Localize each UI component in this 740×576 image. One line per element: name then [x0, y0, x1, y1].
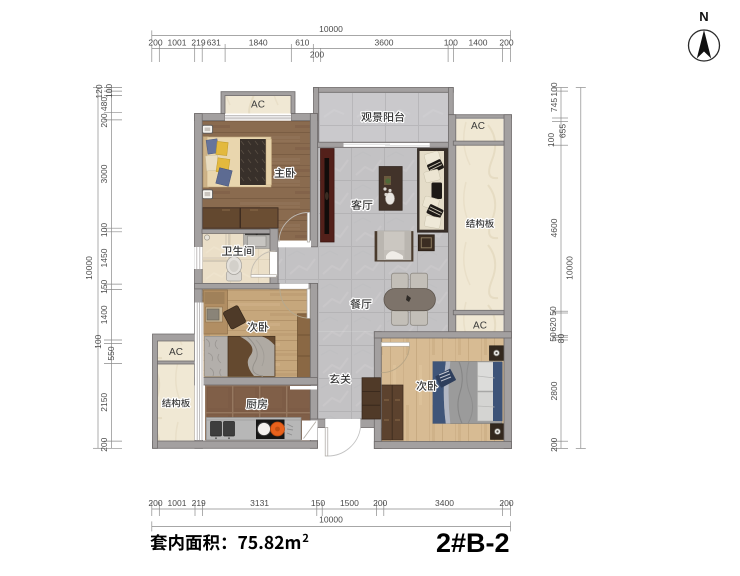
svg-text:AC: AC — [471, 121, 485, 132]
svg-text:100: 100 — [104, 84, 114, 98]
svg-text:10000: 10000 — [565, 256, 575, 280]
svg-text:200: 200 — [549, 437, 559, 451]
svg-text:2150: 2150 — [99, 393, 109, 412]
svg-text:4600: 4600 — [549, 218, 559, 237]
svg-text:480: 480 — [99, 97, 109, 111]
svg-text:550: 550 — [106, 346, 116, 360]
svg-text:1450: 1450 — [99, 248, 109, 267]
svg-text:N: N — [699, 9, 708, 24]
svg-text:219: 219 — [191, 38, 205, 48]
svg-text:100: 100 — [549, 82, 559, 96]
svg-text:219: 219 — [192, 498, 206, 508]
svg-text:100: 100 — [444, 38, 458, 48]
svg-text:655: 655 — [558, 124, 568, 138]
svg-text:1840: 1840 — [249, 38, 268, 48]
svg-text:3131: 3131 — [250, 498, 269, 508]
svg-text:100: 100 — [546, 133, 556, 147]
svg-text:100: 100 — [93, 334, 103, 348]
svg-text:200: 200 — [148, 38, 162, 48]
svg-text:200: 200 — [148, 498, 162, 508]
svg-text:200: 200 — [99, 113, 109, 127]
svg-text:1001: 1001 — [168, 498, 187, 508]
svg-text:80: 80 — [556, 334, 566, 344]
svg-text:3000: 3000 — [99, 164, 109, 183]
svg-text:10000: 10000 — [319, 24, 343, 34]
svg-text:50: 50 — [548, 306, 558, 316]
svg-text:1400: 1400 — [99, 305, 109, 324]
svg-text:2#B-2: 2#B-2 — [436, 528, 510, 558]
svg-text:AC: AC — [169, 347, 183, 358]
svg-text:200: 200 — [499, 38, 513, 48]
svg-text:200: 200 — [310, 50, 324, 60]
svg-text:AC: AC — [251, 100, 265, 111]
svg-text:1400: 1400 — [469, 38, 488, 48]
svg-text:620: 620 — [548, 317, 558, 331]
svg-text:1500: 1500 — [340, 498, 359, 508]
svg-text:120: 120 — [94, 84, 104, 98]
svg-text:3600: 3600 — [375, 38, 394, 48]
svg-text:745: 745 — [549, 98, 559, 112]
svg-text:10000: 10000 — [84, 256, 94, 280]
svg-text:100: 100 — [99, 223, 109, 237]
svg-text:1001: 1001 — [168, 38, 187, 48]
svg-text:200: 200 — [99, 437, 109, 451]
svg-text:200: 200 — [373, 498, 387, 508]
svg-text:631: 631 — [207, 38, 221, 48]
svg-text:2800: 2800 — [549, 381, 559, 400]
svg-text:150: 150 — [311, 498, 325, 508]
svg-text:AC: AC — [473, 321, 487, 332]
svg-text:150: 150 — [99, 279, 109, 293]
svg-text:610: 610 — [295, 38, 309, 48]
svg-text:200: 200 — [499, 498, 513, 508]
svg-text:10000: 10000 — [319, 515, 343, 525]
svg-text:3400: 3400 — [435, 498, 454, 508]
